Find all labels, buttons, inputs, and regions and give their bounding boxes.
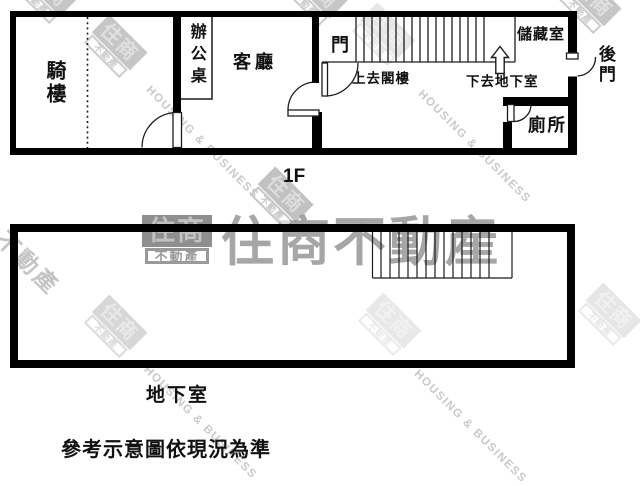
floorplan-linework [0,0,640,470]
hall-wall-lower [312,112,322,148]
storage-room-label: 儲藏室 [517,27,565,43]
office-desk-label: 辦公桌 [187,23,204,89]
down-to-basement-label: 下去地下室 [466,75,539,89]
back-door [567,53,596,77]
basement-label: 地下室 [146,386,209,406]
floorplan-image: 住商不動產 住商 不動產 住商 不動產 住商 不動產 住商 不動產 住商 不動產… [0,0,640,470]
partition-wall [173,17,181,114]
disclaimer-caption: 參考示意圖依現況為準 [61,440,271,461]
down-arrow-icon [492,47,509,74]
staircase-basement [373,232,513,278]
arcade-door [142,113,182,148]
living-room-door [288,82,319,116]
door-label: 門 [331,36,349,55]
staircase-1f [322,17,515,62]
toilet-left-wall [503,121,512,148]
living-room-label: 客廳 [233,53,277,72]
basement-plan [10,224,575,368]
hall-wall-upper [312,17,319,83]
floor-1f-label: 1F [283,167,305,187]
toilet-door [503,105,531,123]
basement-outer-wall [10,224,575,368]
up-to-attic-label: 上去閣樓 [352,72,410,86]
back-door-label: 後門 [596,45,614,85]
toilet-label: 廁所 [528,116,567,134]
arcade-label: 騎樓 [43,60,64,106]
